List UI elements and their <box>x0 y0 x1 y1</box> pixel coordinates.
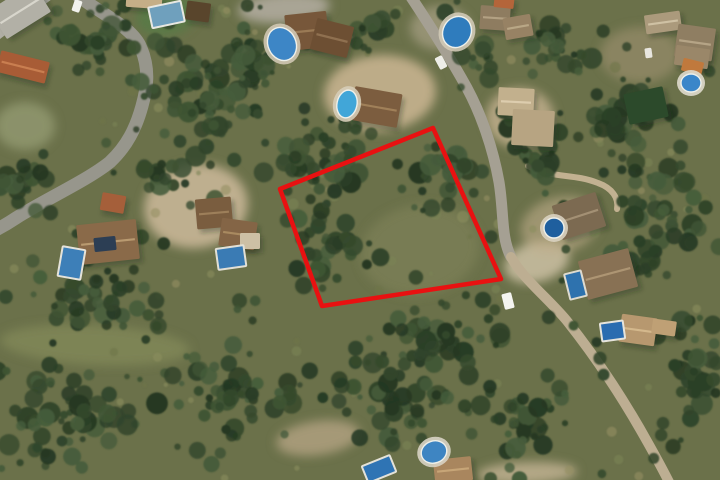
scrub-dot <box>99 118 106 125</box>
tree-blob <box>366 335 373 342</box>
tree-blob <box>425 354 444 373</box>
tree-blob <box>209 120 219 130</box>
tree-blob <box>458 399 471 412</box>
tree-blob <box>32 442 42 452</box>
tree-blob <box>253 109 263 119</box>
tree-blob <box>536 53 548 65</box>
scrub-dot <box>607 427 617 437</box>
tree-blob <box>280 430 288 438</box>
tree-blob <box>682 410 699 427</box>
tree-blob <box>45 377 55 387</box>
tree-blob <box>327 116 334 123</box>
tree-blob <box>306 194 316 204</box>
tree-blob <box>475 164 489 178</box>
villa-left-solar-panels <box>93 236 116 252</box>
tree-blob <box>550 39 565 54</box>
tree-blob <box>155 310 164 319</box>
tree-blob <box>261 139 269 147</box>
tree-blob <box>144 182 155 193</box>
tree-blob <box>453 350 460 357</box>
tree-blob <box>523 157 529 163</box>
tree-blob <box>411 204 417 210</box>
tree-blob <box>573 132 583 142</box>
tree-blob <box>189 442 206 459</box>
tree-blob <box>250 296 261 307</box>
scrub-dot <box>110 348 118 356</box>
tree-blob <box>593 352 606 365</box>
scrub-dot <box>117 398 124 405</box>
tree-blob <box>528 69 538 79</box>
tree-blob <box>420 378 433 391</box>
villa-left-solar-panels-roof <box>93 236 116 252</box>
tree-blob <box>351 429 368 446</box>
tree-blob <box>668 359 681 372</box>
tree-blob <box>80 436 86 442</box>
tree-blob <box>541 368 555 382</box>
tree-blob <box>201 59 210 68</box>
tree-blob <box>351 356 361 366</box>
tree-blob <box>227 153 241 167</box>
tree-blob <box>351 124 362 135</box>
tree-blob <box>41 357 57 373</box>
aerial-map <box>0 0 720 480</box>
tree-blob <box>357 394 362 399</box>
tree-blob <box>159 173 172 186</box>
tree-blob <box>297 382 303 388</box>
tree-blob <box>72 64 84 76</box>
pool-center-villa <box>216 245 247 270</box>
tree-blob <box>649 245 663 259</box>
tree-blob <box>532 159 545 172</box>
tree-blob <box>168 81 184 97</box>
tree-blob <box>367 405 376 414</box>
tree-blob <box>469 188 479 198</box>
tree-blob <box>188 109 197 118</box>
tree-blob <box>673 140 688 155</box>
tree-blob <box>624 206 645 227</box>
scrub-dot <box>529 225 537 233</box>
tree-blob <box>599 167 609 177</box>
tree-blob <box>441 391 454 404</box>
tree-blob <box>317 392 328 403</box>
tree-blob <box>215 448 226 459</box>
tree-blob <box>420 208 426 214</box>
tree-blob <box>618 154 626 162</box>
scrub-dot <box>221 185 231 195</box>
tree-blob <box>238 390 245 397</box>
tree-blob <box>203 456 219 472</box>
tree-blob <box>561 23 572 34</box>
tree-blob <box>709 338 720 349</box>
tree-blob <box>622 42 631 51</box>
tree-blob <box>258 70 268 80</box>
tree-blob <box>390 428 397 435</box>
tree-blob <box>146 392 168 414</box>
tree-blob <box>150 85 159 94</box>
tree-blob <box>32 164 48 180</box>
tree-blob <box>2 367 10 375</box>
tree-blob <box>688 350 705 367</box>
tree-blob <box>462 291 470 299</box>
tree-blob <box>591 88 603 100</box>
tree-blob <box>167 102 183 118</box>
tree-blob <box>392 159 403 170</box>
tree-blob <box>129 265 139 275</box>
tree-blob <box>92 297 103 308</box>
tree-blob <box>608 149 616 157</box>
tree-blob <box>442 331 450 339</box>
tree-blob <box>385 401 400 416</box>
scrub-dot <box>207 270 215 278</box>
tree-blob <box>86 10 94 18</box>
tree-blob <box>141 93 148 100</box>
tree-blob <box>348 341 363 356</box>
tree-blob <box>509 417 519 427</box>
tree-blob <box>562 245 571 254</box>
tree-blob <box>28 418 41 431</box>
scrub-dot <box>172 280 180 288</box>
round-pool-bigvilla-water <box>681 74 701 92</box>
tree-blob <box>332 394 347 409</box>
tree-blob <box>630 136 646 152</box>
tree-blob <box>649 224 664 239</box>
tree-blob <box>327 184 342 199</box>
tree-blob <box>517 393 529 405</box>
tree-blob <box>25 389 44 408</box>
tree-blob <box>476 334 485 343</box>
scrub-dot <box>292 346 302 356</box>
tree-blob <box>221 425 230 434</box>
tree-blob <box>493 342 499 348</box>
tree-blob <box>127 41 141 55</box>
tree-blob <box>159 75 169 85</box>
tree-blob <box>26 254 39 267</box>
tree-blob <box>542 310 556 324</box>
tree-blob <box>323 200 331 208</box>
tree-blob <box>620 77 626 83</box>
tree-blob <box>706 373 720 387</box>
tree-blob <box>101 138 111 148</box>
tree-blob <box>466 428 478 440</box>
scrub-dot <box>153 353 162 362</box>
tree-blob <box>649 194 656 201</box>
tree-blob <box>414 348 426 360</box>
tree-blob <box>204 73 211 80</box>
scrub-dot <box>468 234 473 239</box>
tree-blob <box>581 48 602 69</box>
tree-blob <box>606 121 626 141</box>
tree-blob <box>395 323 408 336</box>
tree-blob <box>79 309 84 314</box>
tree-blob <box>174 399 184 409</box>
tree-blob <box>537 426 545 434</box>
tree-blob <box>363 15 381 33</box>
scrub-dot <box>10 264 19 273</box>
tree-blob <box>490 415 498 423</box>
tree-blob <box>205 110 214 119</box>
scrub-dot <box>457 211 469 223</box>
tree-blob <box>371 248 389 266</box>
tree-blob <box>365 47 372 54</box>
tree-blob <box>206 160 215 169</box>
tree-blob <box>165 160 179 174</box>
tree-blob <box>104 268 111 275</box>
tree-blob <box>136 161 154 179</box>
tree-blob <box>49 339 56 346</box>
scrub-dot <box>403 441 412 450</box>
tree-blob <box>152 321 162 331</box>
scrub-dot <box>692 305 701 314</box>
tree-blob <box>344 145 357 158</box>
tree-blob <box>186 201 195 210</box>
tree-blob <box>671 117 686 132</box>
tree-blob <box>17 459 24 466</box>
tan-house-b <box>511 109 555 147</box>
tree-blob <box>418 187 426 195</box>
tree-blob <box>425 341 441 357</box>
tree-blob <box>28 203 43 218</box>
tree-blob <box>258 5 263 10</box>
pool-bottomright-water <box>600 320 625 341</box>
scrub-dot <box>252 29 258 35</box>
tree-blob <box>137 377 142 382</box>
tree-blob <box>310 218 326 234</box>
tree-blob <box>235 104 251 120</box>
tree-blob <box>390 9 401 20</box>
tree-blob <box>16 421 26 431</box>
tree-blob <box>676 386 687 397</box>
tree-blob <box>483 380 496 393</box>
scrub-dot <box>294 465 299 470</box>
tree-blob <box>288 260 305 277</box>
scrub-dot <box>294 338 300 344</box>
tree-blob <box>331 371 348 388</box>
tree-blob <box>658 204 670 216</box>
pool-left-villa-water <box>58 246 86 280</box>
scrub-dot <box>164 383 168 387</box>
tree-blob <box>103 295 120 312</box>
tree-blob <box>289 151 302 164</box>
tree-blob <box>479 69 499 89</box>
tree-blob <box>691 335 699 343</box>
tree-blob <box>319 132 329 142</box>
tree-blob <box>223 379 233 389</box>
tree-blob <box>174 135 187 148</box>
tree-blob <box>484 314 493 323</box>
tree-blob <box>454 320 462 328</box>
tree-blob <box>234 305 242 313</box>
tree-blob <box>31 291 37 297</box>
tree-blob <box>575 67 583 75</box>
scrub-dot <box>151 208 161 218</box>
tree-blob <box>111 281 127 297</box>
tree-blob <box>505 430 512 437</box>
scrub-dot <box>565 466 574 475</box>
tree-blob <box>533 435 552 454</box>
tree-blob <box>40 449 56 465</box>
tan-house-a-ridge <box>501 101 531 103</box>
tree-blob <box>33 270 47 284</box>
tree-blob <box>299 103 311 115</box>
tree-blob <box>314 183 325 194</box>
tree-blob <box>592 337 602 347</box>
tree-blob <box>194 386 204 396</box>
tree-blob <box>270 70 275 75</box>
tree-blob <box>218 129 226 137</box>
tree-blob <box>261 79 269 87</box>
tree-blob <box>84 369 95 380</box>
tree-blob <box>418 316 431 329</box>
tree-blob <box>157 160 166 169</box>
tree-blob <box>214 67 221 74</box>
tree-blob <box>70 417 84 431</box>
tree-blob <box>181 179 189 187</box>
tan-house-b-roof <box>511 109 555 147</box>
tree-blob <box>424 144 432 152</box>
scrub-dot <box>374 286 383 295</box>
tree-blob <box>673 172 694 193</box>
tree-blob <box>301 118 309 126</box>
scrub-dot <box>484 195 490 201</box>
tree-blob <box>597 25 610 38</box>
tree-blob <box>111 170 117 176</box>
tree-blob <box>247 413 258 424</box>
tree-blob <box>59 24 81 46</box>
tree-blob <box>429 402 435 408</box>
tree-blob <box>185 54 203 72</box>
tree-blob <box>617 165 626 174</box>
tree-blob <box>319 284 327 292</box>
tree-blob <box>475 292 491 308</box>
tree-blob <box>598 369 610 381</box>
scrub-dot <box>492 285 501 294</box>
tree-blob <box>16 176 24 184</box>
tree-blob <box>507 402 517 412</box>
tree-blob <box>66 373 82 389</box>
tree-blob <box>96 67 105 76</box>
tree-blob <box>9 405 21 417</box>
tree-blob <box>362 260 372 270</box>
tree-blob <box>38 149 48 159</box>
tree-blob <box>157 237 170 250</box>
tree-blob <box>200 367 217 384</box>
pool-house-top <box>185 0 211 22</box>
tree-blob <box>667 215 677 225</box>
scrub-dot <box>112 122 117 127</box>
tree-blob <box>254 162 274 182</box>
tree-blob <box>90 36 104 50</box>
tree-blob <box>249 316 257 324</box>
tree-blob <box>542 190 549 197</box>
tree-blob <box>698 200 712 214</box>
tree-blob <box>101 15 122 36</box>
tree-blob <box>362 353 383 374</box>
tree-blob <box>676 161 686 171</box>
pool-bottomright <box>600 320 625 341</box>
tree-blob <box>398 185 407 194</box>
tree-blob <box>409 270 424 285</box>
tree-blob <box>475 41 491 57</box>
tree-blob <box>442 301 451 310</box>
pool-house-top-roof <box>185 0 211 22</box>
tree-blob <box>417 418 427 428</box>
tree-blob <box>206 394 213 401</box>
tree-blob <box>519 436 527 444</box>
scrub-dot <box>645 384 652 391</box>
tree-blob <box>164 367 182 385</box>
tree-blob <box>410 305 420 315</box>
tree-blob <box>385 436 401 452</box>
tree-blob <box>616 195 628 207</box>
tree-blob <box>102 320 112 330</box>
tree-blob <box>160 128 170 138</box>
tree-blob <box>174 444 180 450</box>
scrub-dot <box>667 149 674 156</box>
tree-blob <box>200 102 207 109</box>
tree-blob <box>239 75 245 81</box>
tree-blob <box>372 412 390 430</box>
tree-blob <box>657 417 670 430</box>
scrub-dot <box>597 140 604 147</box>
round-pool-bigvilla <box>677 70 705 96</box>
tree-blob <box>489 323 510 344</box>
tree-blob <box>325 236 343 254</box>
tree-blob <box>523 57 531 65</box>
tree-blob <box>247 351 253 357</box>
tree-blob <box>133 126 139 132</box>
tree-blob <box>648 453 659 464</box>
tree-blob <box>685 236 698 249</box>
round-pool-midright-water <box>544 218 564 238</box>
pool-left-villa <box>58 246 86 280</box>
tree-blob <box>457 83 465 91</box>
scrub-dot <box>429 272 433 276</box>
scrub-dot <box>143 383 147 387</box>
tree-blob <box>153 174 160 181</box>
tree-blob <box>223 395 232 404</box>
tree-blob <box>384 367 398 381</box>
tree-blob <box>43 205 58 220</box>
tree-blob <box>505 463 515 473</box>
tree-blob <box>445 183 455 193</box>
tree-blob <box>462 327 474 339</box>
tree-blob <box>690 368 698 376</box>
tree-blob <box>79 284 90 295</box>
scrub-dot <box>614 455 623 464</box>
tree-blob <box>365 128 378 141</box>
tree-blob <box>528 398 548 418</box>
tree-blob <box>190 77 203 90</box>
tree-blob <box>211 385 222 396</box>
tree-blob <box>69 301 85 317</box>
satellite-photo <box>0 0 720 480</box>
tree-blob <box>423 199 441 217</box>
tree-blob <box>239 374 252 387</box>
tree-blob <box>366 240 372 246</box>
tree-blob <box>295 277 312 294</box>
tree-blob <box>338 120 351 133</box>
car-bigvilla <box>644 48 652 59</box>
tree-blob <box>666 228 683 245</box>
tree-blob <box>320 148 331 159</box>
scrub-dot <box>188 397 194 403</box>
tree-blob <box>121 404 137 420</box>
tree-blob <box>489 304 500 315</box>
tree-blob <box>441 197 456 212</box>
tree-blob <box>227 105 235 113</box>
tree-blob <box>246 388 258 400</box>
tree-blob <box>93 275 101 283</box>
